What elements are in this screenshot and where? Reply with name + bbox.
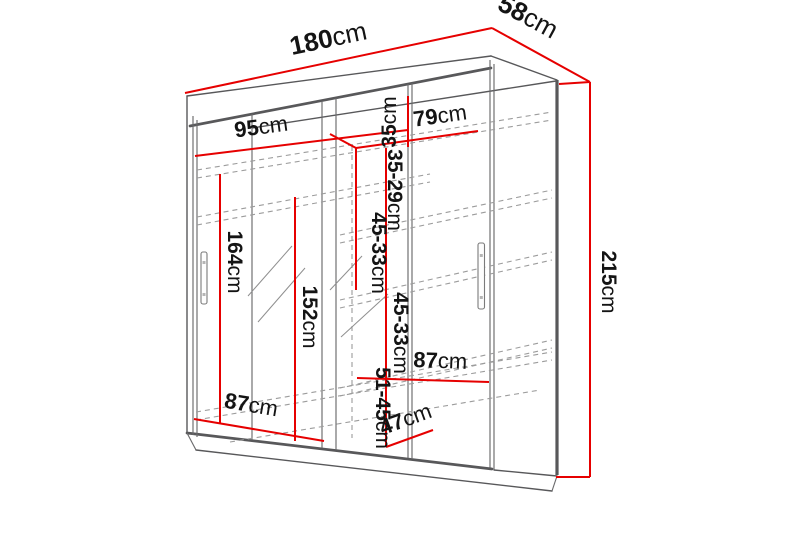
dim-shelf-gap-mid-right-label: 45-33cm (389, 292, 412, 374)
dim-hang-height-mid-label: 152cm (298, 285, 321, 348)
diagram-canvas: 180cm 58cm 215cm 95cm 79cm 35cm 35-29cm … (0, 0, 800, 533)
dim-shelf-width-right-label: 87cm (413, 347, 468, 374)
dim-line-95 (195, 130, 408, 156)
dim-hang-height-left-label: 164cm (223, 230, 246, 293)
wardrobe-dimension-diagram: 180cm 58cm 215cm 95cm 79cm 35cm 35-29cm … (0, 0, 800, 533)
dim-depth-label: 58cm (493, 0, 563, 44)
dim-shelf-gap-mid-left-label: 45-33cm (367, 212, 390, 294)
dim-top-shelf-label: 35cm (378, 96, 401, 147)
dim-right-section-width-label: 79cm (412, 99, 469, 131)
left-door-handle (201, 252, 207, 304)
right-door-handle (478, 243, 485, 309)
dim-bottom-width-left-label: 87cm (223, 388, 280, 422)
dim-width-label: 180cm (287, 15, 370, 61)
dim-height-label: 215cm (597, 250, 620, 313)
